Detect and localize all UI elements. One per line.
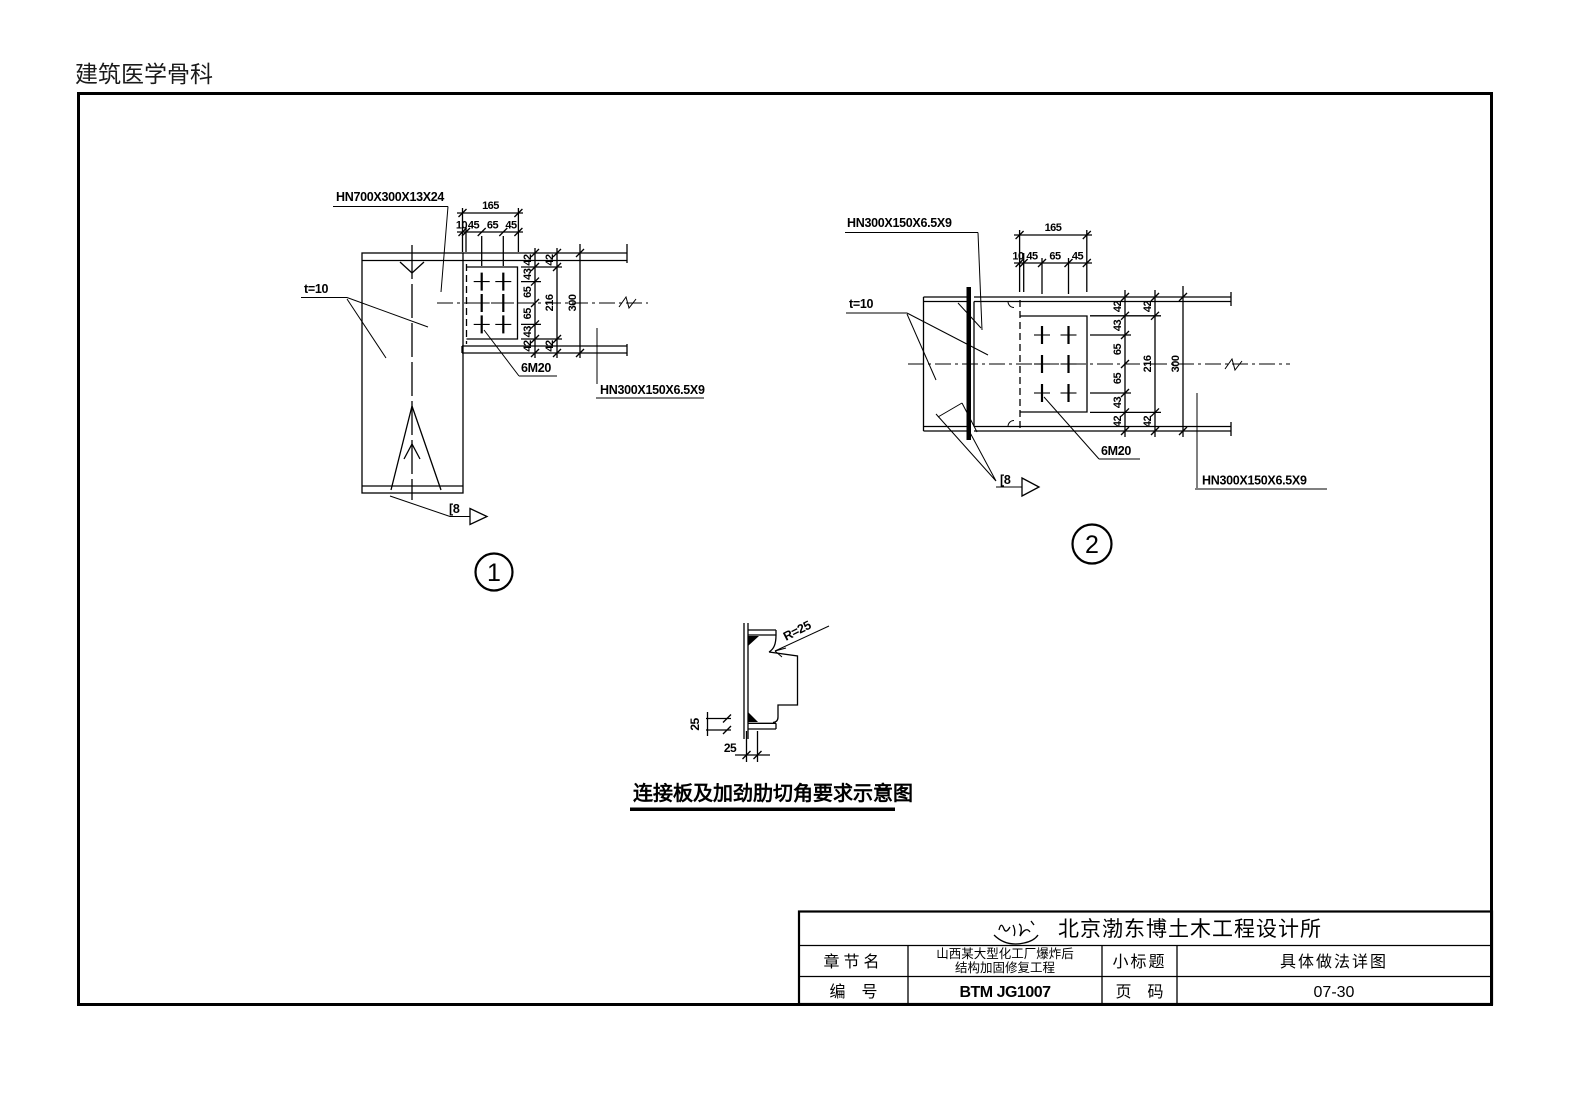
project-name-line1: 山西某大型化工厂爆炸后: [936, 947, 1074, 961]
weld-triangle-bottom: [391, 406, 441, 490]
dim-65: 65: [1112, 373, 1124, 385]
beam-section-label-right: HN300X150X6.5X9: [1202, 474, 1307, 488]
dim-65: 65: [487, 220, 499, 232]
dim-42: 42: [1112, 301, 1124, 313]
weld-arrow-icon: [1022, 478, 1039, 496]
caption-underline: [630, 808, 895, 812]
title-block: 北京渤东博土木工程设计所 章节名 山西某大型化工厂爆炸后 结构加固修复工程 小标…: [799, 912, 1492, 1005]
dim-300: 300: [567, 294, 579, 311]
dim-43: 43: [522, 326, 534, 338]
bolt-label: 6M20: [521, 361, 551, 375]
stiffener-outline: [769, 652, 798, 723]
detail-2-beam-splice-connection: 165 10 45 65 45 42 43 65 65 43 42 42 21: [845, 216, 1327, 564]
project-name-line2: 结构加固修复工程: [955, 960, 1056, 975]
drawing-number: BTM JG1007: [959, 984, 1051, 1001]
dim-42: 42: [1142, 416, 1154, 428]
side-dim: [706, 712, 731, 736]
dim-25-bottom: 25: [724, 741, 737, 755]
weld-arrow-icon: [470, 509, 487, 525]
company-name: 北京渤东博土木工程设计所: [1058, 918, 1322, 941]
radius-cut-arc: [769, 635, 776, 652]
dim-42: 42: [1142, 301, 1154, 313]
dim-25-side: 25: [688, 718, 702, 731]
dim-43: 43: [1112, 397, 1124, 409]
page-number: 07-30: [1314, 984, 1355, 1001]
dim-43: 43: [1112, 320, 1124, 332]
weld-access-scallop-top: [1008, 302, 1014, 308]
dim-45: 45: [468, 220, 480, 232]
signature-seal-icon: [994, 921, 1038, 944]
leader-arrow: [775, 648, 786, 657]
dim-45: 45: [1072, 251, 1084, 263]
dim-300: 300: [1170, 355, 1182, 372]
radius-label: R=25: [781, 618, 814, 644]
sheet-border: [79, 94, 1492, 1005]
number-label: 编 号: [829, 983, 877, 1001]
weld-access-scallop-bottom: [1008, 421, 1014, 427]
dim-42: 42: [544, 340, 556, 352]
dim-10: 10: [1012, 251, 1024, 263]
weld-triangle-top: [748, 636, 759, 646]
page-label: 页 码: [1115, 983, 1163, 1001]
subtitle-label: 小标题: [1112, 953, 1166, 971]
plate-thickness-label: t=10: [849, 297, 874, 311]
detail-number: 2: [1085, 531, 1099, 559]
subtitle-value: 具体做法详图: [1280, 953, 1388, 971]
dim-43: 43: [522, 268, 534, 280]
detail-1-column-beam-connection: 165 10 45 65 45 42 43 65 65 43 42 42 21: [301, 190, 705, 591]
corner-cut-detail: 25 25 R=25 连接板及加劲肋切角要求示意图: [630, 618, 913, 811]
dim-42: 42: [522, 340, 534, 352]
bottom-dim: [735, 731, 770, 762]
dim-45: 45: [505, 220, 517, 232]
weld-size-label: [8: [449, 502, 460, 516]
weld-triangle-bottom: [748, 712, 758, 722]
beam-section-label: HN300X150X6.5X9: [600, 383, 705, 397]
document-header: 建筑医学骨科: [75, 62, 213, 87]
dim-216: 216: [1142, 355, 1154, 372]
beam-section-label-top: HN300X150X6.5X9: [847, 216, 952, 230]
plate-thickness-label: t=10: [304, 282, 329, 296]
chapter-label: 章节名: [823, 953, 883, 971]
detail1-top-dimensions: [457, 208, 523, 266]
weld-size-label: [8: [1000, 473, 1011, 487]
drawing-sheet: 建筑医学骨科: [0, 0, 1571, 1098]
dim-65: 65: [1112, 344, 1124, 356]
corner-detail-caption: 连接板及加劲肋切角要求示意图: [633, 781, 913, 805]
dim-65: 65: [1049, 251, 1061, 263]
column-section-label: HN700X300X13X24: [336, 190, 444, 204]
dim-10: 10: [456, 220, 468, 232]
bolt-label: 6M20: [1101, 444, 1131, 458]
weld-mark-bottom: [938, 403, 977, 432]
dim-216: 216: [544, 294, 556, 311]
dim-65: 65: [522, 286, 534, 298]
dim-42: 42: [544, 254, 556, 266]
dim-45: 45: [1026, 251, 1038, 263]
dim-165: 165: [1045, 222, 1062, 234]
dim-42: 42: [1112, 416, 1124, 428]
dim-165: 165: [482, 200, 499, 212]
dim-65: 65: [522, 308, 534, 320]
dim-42: 42: [522, 254, 534, 266]
detail-number: 1: [487, 559, 501, 587]
